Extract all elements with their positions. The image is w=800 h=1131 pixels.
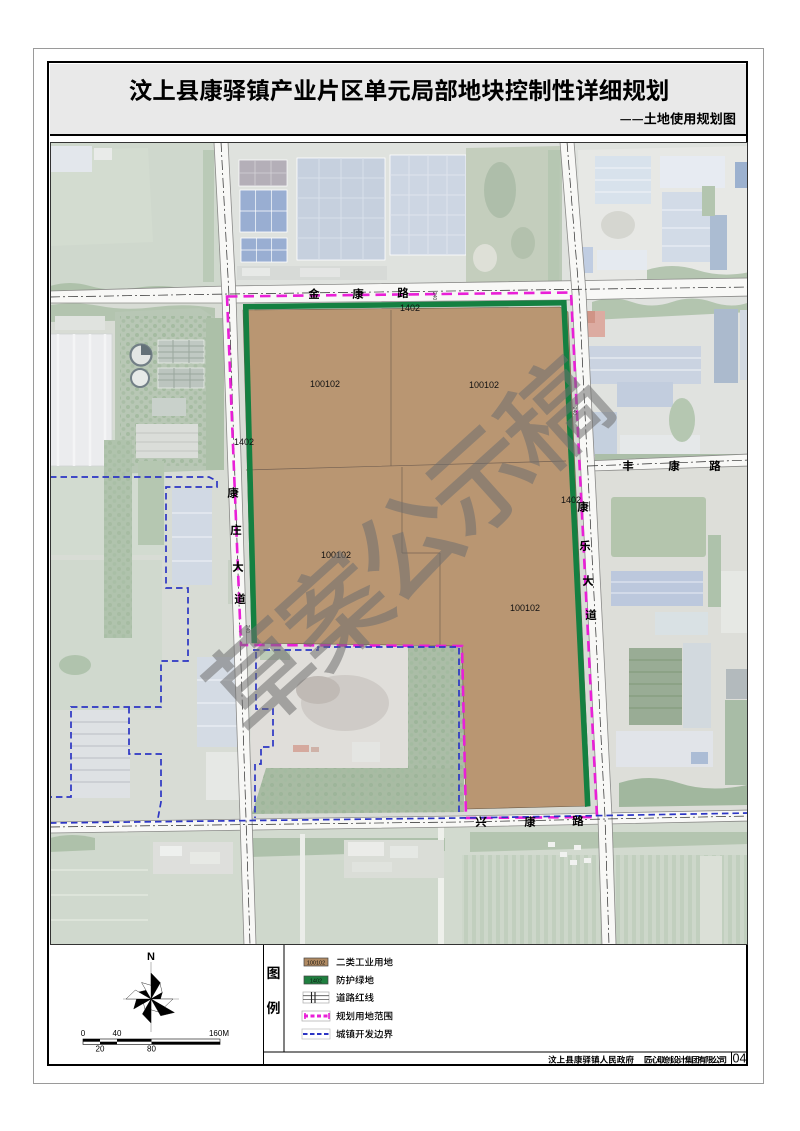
svg-text:100102: 100102 — [510, 603, 540, 613]
svg-text:40: 40 — [113, 1029, 122, 1038]
svg-text:100102: 100102 — [310, 379, 340, 389]
svg-text:1402: 1402 — [400, 303, 420, 313]
svg-text:1402: 1402 — [561, 495, 581, 505]
svg-text:80: 80 — [147, 1045, 156, 1054]
svg-text:240: 240 — [431, 292, 437, 301]
svg-text:1402: 1402 — [310, 979, 322, 985]
svg-text:0: 0 — [81, 1029, 86, 1038]
svg-text:1402: 1402 — [234, 437, 254, 447]
svg-text:160M: 160M — [209, 1029, 229, 1038]
svg-text:100102: 100102 — [469, 380, 499, 390]
svg-text:N: N — [147, 951, 155, 963]
svg-text:20: 20 — [96, 1045, 105, 1054]
svg-text:04: 04 — [733, 1052, 747, 1066]
svg-text:100102: 100102 — [307, 961, 325, 967]
